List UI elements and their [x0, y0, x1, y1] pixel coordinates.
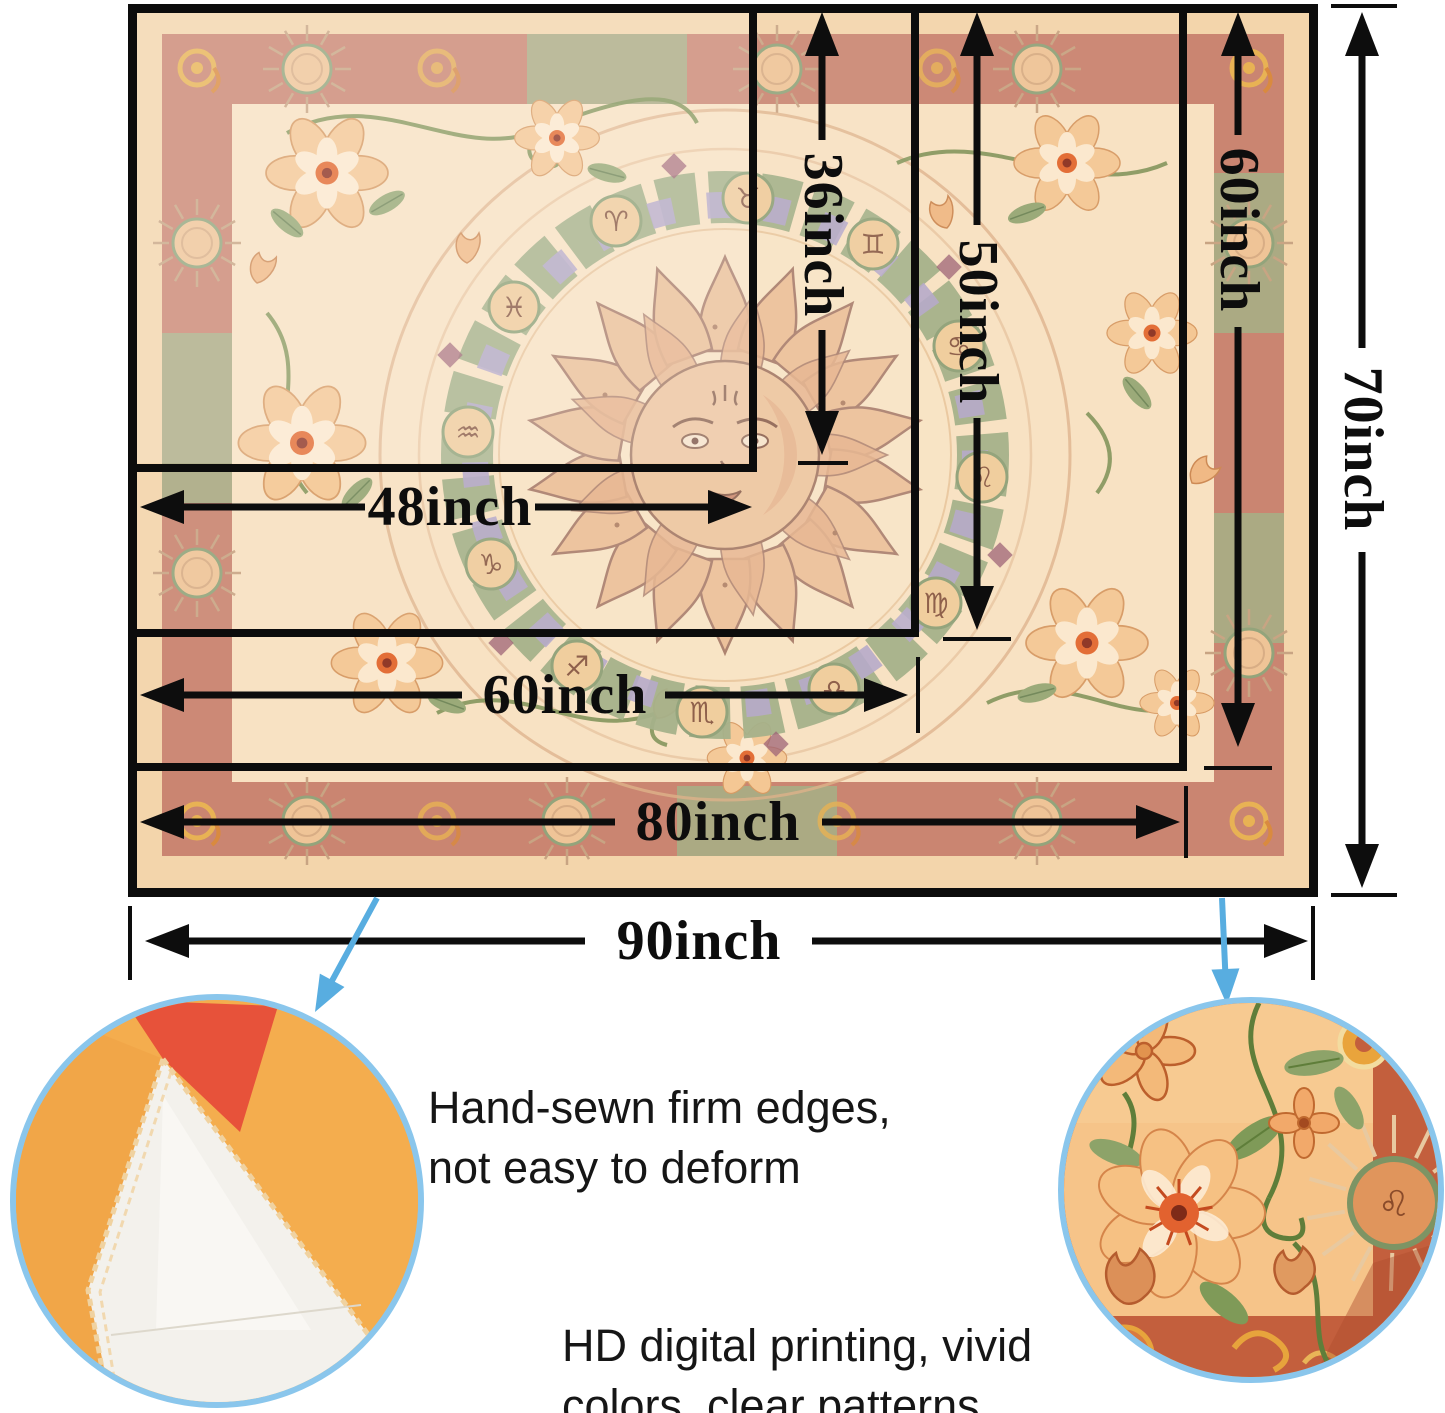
- detail-circle-pattern: ♌: [1058, 997, 1444, 1383]
- height-arrow-60: [1204, 12, 1272, 768]
- height-label-36: 36inch: [791, 153, 855, 318]
- stitching-closeup-illustration: [16, 1000, 418, 1402]
- height-label-70: 70inch: [1331, 367, 1395, 532]
- pattern-closeup-illustration: ♌: [1064, 1003, 1438, 1377]
- height-label-50: 50inch: [946, 240, 1010, 405]
- feature-text-printing: HD digital printing, vivid colors, clear…: [562, 1316, 1032, 1413]
- width-label-60: 60inch: [483, 663, 648, 727]
- feature-stitching-line2: not easy to deform: [428, 1138, 891, 1198]
- feature-stitching-line1: Hand-sewn firm edges,: [428, 1078, 891, 1138]
- callout-arrow-left: [303, 898, 377, 1019]
- feature-printing-line1: HD digital printing, vivid: [562, 1316, 1032, 1376]
- width-label-80: 80inch: [636, 790, 801, 854]
- medallion-leo-glyph: ♌: [1378, 1184, 1410, 1225]
- width-label-48: 48inch: [368, 475, 533, 539]
- height-label-60: 60inch: [1207, 148, 1271, 313]
- feature-text-stitching: Hand-sewn firm edges, not easy to deform: [428, 1078, 891, 1198]
- width-label-90: 90inch: [617, 909, 782, 973]
- product-size-chart: ♈ ♉ ♊ ♋ ♌ ♍ ♎ ♏ ♐ ♑ ♒ ♓: [0, 0, 1445, 1413]
- callout-arrow-right: [1211, 898, 1241, 1006]
- detail-circle-stitching: [10, 994, 424, 1408]
- feature-printing-line2: colors, clear patterns: [562, 1376, 1032, 1413]
